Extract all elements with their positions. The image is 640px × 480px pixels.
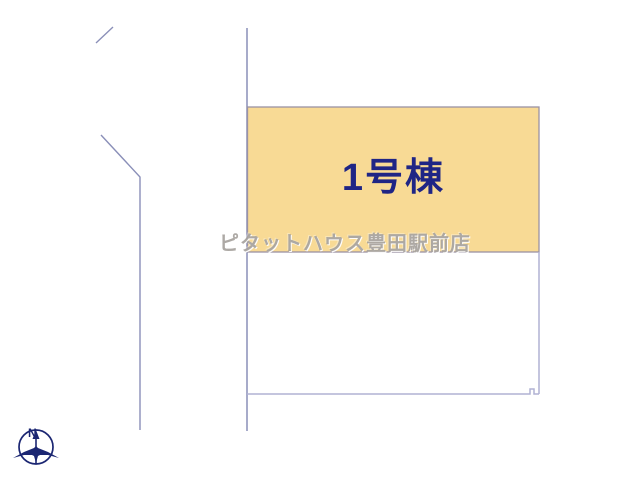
boundary-diagonal-topleft <box>96 27 113 43</box>
boundary-left-polyline <box>101 135 140 430</box>
store-watermark: ピタットハウス豊田駅前店 <box>219 227 471 256</box>
site-plan-canvas: 1号棟 ピタットハウス豊田駅前店 N <box>0 0 640 480</box>
building-number-label: 1号棟 <box>248 158 539 200</box>
boundary-bottom-horizontal <box>247 389 539 394</box>
north-compass-icon: N <box>10 420 64 472</box>
